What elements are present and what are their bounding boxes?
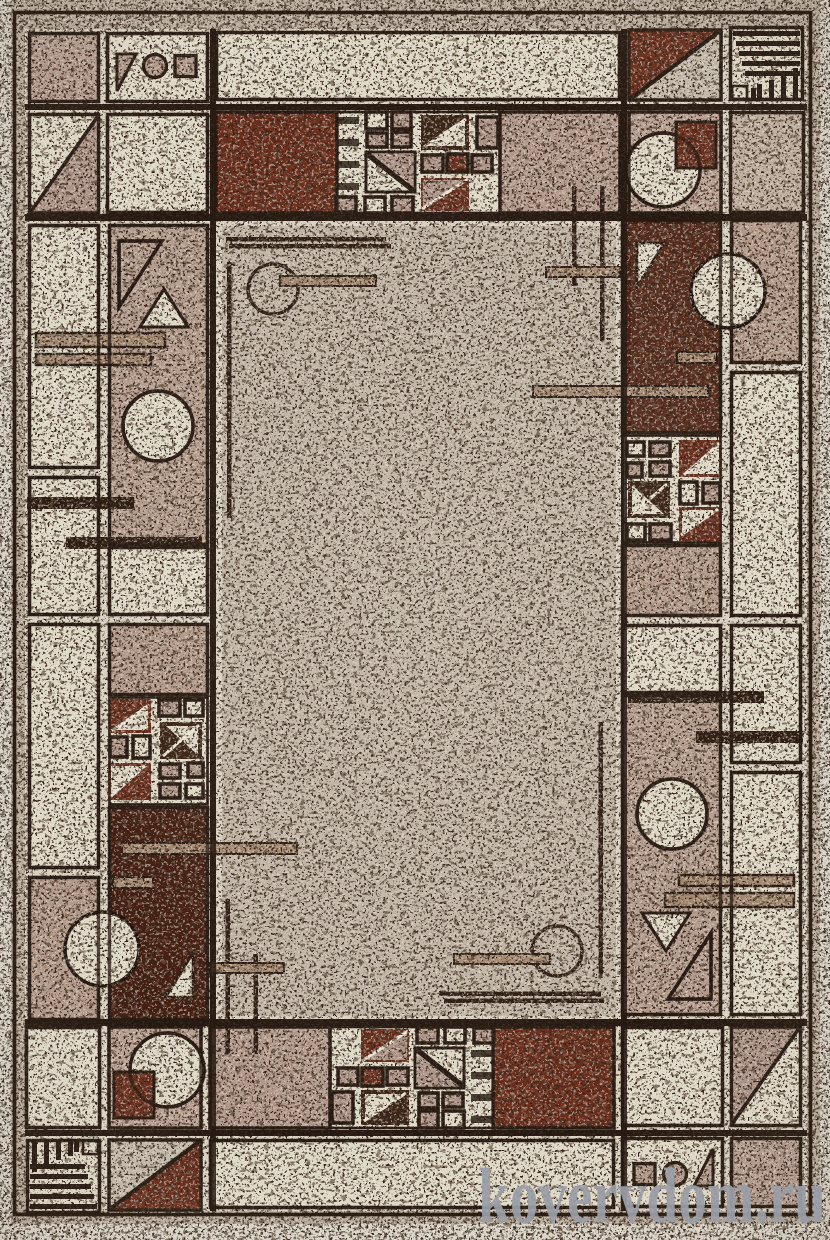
svg-text:kovervdom.ru: kovervdom.ru xyxy=(478,1152,826,1239)
